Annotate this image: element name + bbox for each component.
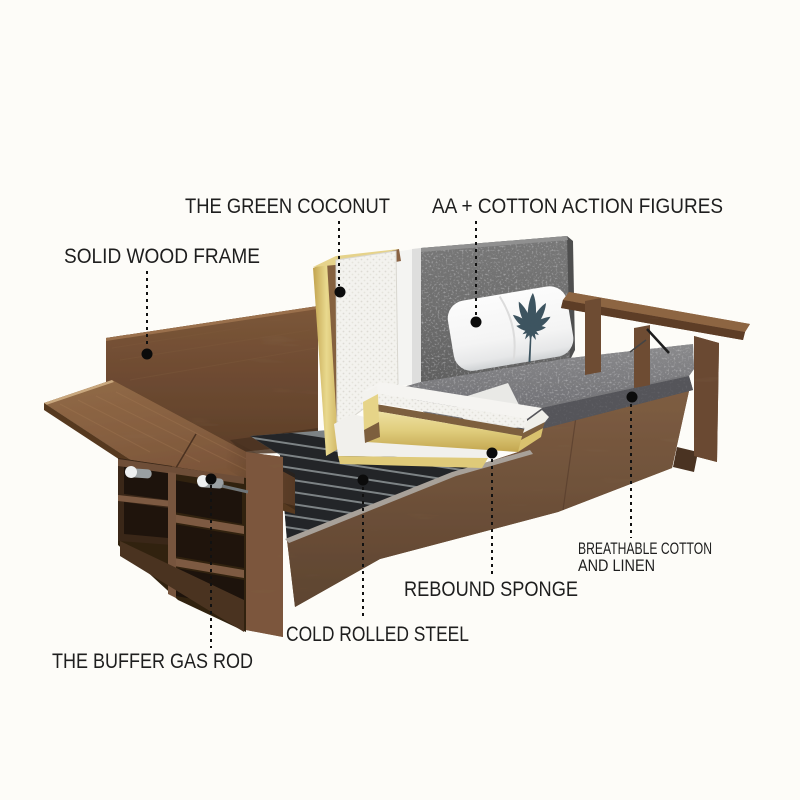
svg-text:BREATHABLE COTTON: BREATHABLE COTTON — [578, 540, 712, 558]
svg-text:THE GREEN COCONUT: THE GREEN COCONUT — [185, 194, 390, 218]
svg-text:REBOUND SPONGE: REBOUND SPONGE — [404, 577, 578, 601]
svg-text:AND LINEN: AND LINEN — [578, 557, 655, 575]
svg-text:AA + COTTON ACTION FIGURES: AA + COTTON ACTION FIGURES — [432, 194, 723, 218]
svg-text:SOLID WOOD FRAME: SOLID WOOD FRAME — [64, 244, 260, 268]
svg-text:COLD ROLLED STEEL: COLD ROLLED STEEL — [286, 622, 469, 646]
svg-text:THE BUFFER GAS ROD: THE BUFFER GAS ROD — [52, 649, 253, 673]
